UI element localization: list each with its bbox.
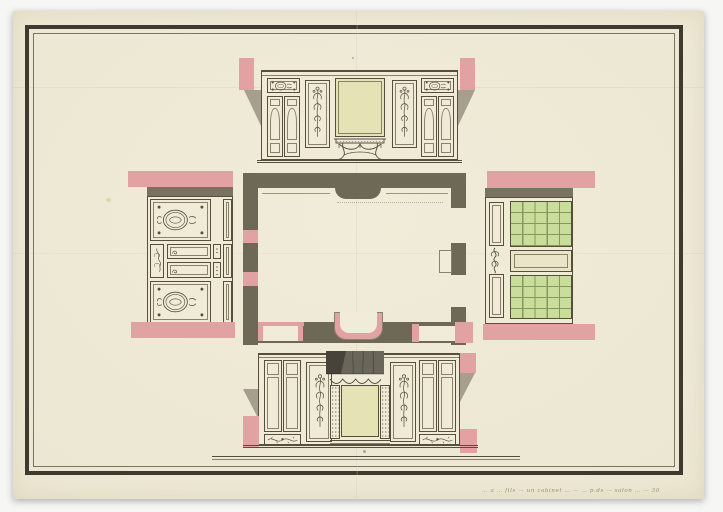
door-panel (424, 143, 434, 153)
plan-hearth-opening (340, 312, 377, 333)
door-panel-arched (424, 108, 434, 140)
door-leaf (421, 96, 437, 157)
cut-wall-pink-left (239, 58, 254, 90)
console-table (332, 137, 388, 161)
plan-window-pier (451, 188, 466, 208)
cupboard-door (264, 360, 282, 432)
medallion-ornament (423, 80, 452, 92)
door-panel (267, 363, 279, 375)
scalloped-valance (329, 378, 381, 385)
foxing-spot (363, 450, 366, 453)
plan-measure-line (337, 202, 443, 203)
west-wall-elevation (147, 196, 233, 324)
cupboard-door (283, 360, 301, 432)
plan-window-pier (451, 243, 466, 275)
door-panel (441, 377, 453, 429)
trellised-window (510, 201, 572, 247)
medallion-ornament (269, 80, 298, 92)
medallion-ornament (153, 202, 208, 238)
plan-door-jamb-pink (258, 326, 263, 341)
overdoor-long-panel (510, 250, 572, 272)
door-panel (422, 377, 434, 429)
vine-garland-ornament (266, 436, 299, 444)
narrow-stile-panel (489, 202, 504, 246)
door-panel (286, 363, 298, 375)
plan-door-jamb-pink (412, 324, 419, 342)
flower-garland-ornament (394, 83, 415, 145)
narrow-stile-panel (223, 199, 232, 241)
north-wall-elevation (261, 70, 458, 160)
flower-spray-ornament (393, 367, 415, 439)
door-panel (424, 99, 434, 106)
plan-door-jamb-pink (243, 230, 258, 243)
door-panel (287, 99, 297, 106)
cut-wall-pink-bottom (131, 322, 235, 338)
ornament-stile (150, 244, 164, 278)
cut-wall-pink-left (243, 416, 259, 447)
garland-dado-panel (264, 434, 301, 445)
door-panel (441, 363, 453, 375)
plan-console-bow (335, 188, 381, 199)
east-wall-elevation (485, 197, 573, 324)
door-panel (441, 143, 451, 153)
plan-wainscot-line (386, 193, 448, 194)
vine-garland-ornament (421, 436, 454, 444)
door-panel (270, 143, 280, 153)
fluted-end-panel (213, 262, 221, 278)
cut-wall-pink-right (460, 353, 476, 373)
fluted-end-panel (213, 244, 221, 259)
door-panel (287, 143, 297, 153)
plan-north-wall (243, 173, 466, 188)
south-wall-elevation (258, 353, 460, 445)
cut-wall-pink-right (460, 58, 475, 90)
plan-door-jamb-pink (243, 272, 258, 286)
door-panel (286, 377, 298, 429)
frieze-medallion-panel (421, 78, 454, 93)
sprig-ornament (152, 246, 162, 276)
plan-west-wall (243, 173, 258, 345)
plan-door-opening (419, 326, 455, 341)
cornice-band (147, 187, 233, 196)
cupboard-door (419, 360, 437, 432)
medallion-wainscot-panel (150, 281, 211, 323)
plan-corner-pink (455, 322, 473, 343)
floral-wainscot-panel (305, 80, 330, 148)
cut-wall-pink-top (128, 171, 233, 187)
cupboard-door (438, 360, 456, 432)
carved-trophy-ornament (485, 246, 505, 274)
scroll-ornament (171, 267, 179, 275)
floor-line (243, 445, 478, 448)
door-panel-arched (270, 108, 280, 140)
drapery-pelmet (325, 351, 385, 378)
door-leaf (438, 96, 454, 157)
medallion-ornament (153, 284, 208, 320)
narrow-stile-panel (223, 281, 232, 323)
plan-wainscot-line (262, 193, 330, 194)
dado-long-panel (167, 244, 211, 259)
door-panel (441, 99, 451, 106)
cut-wall-pink-bottom (483, 324, 595, 340)
foxing-spot (352, 57, 354, 59)
garland-dado-panel (419, 434, 456, 445)
mirror-jamb-beaded (380, 385, 390, 439)
narrow-stile-panel (223, 244, 232, 278)
narrow-stile-panel (489, 274, 504, 318)
floral-wainscot-panel (390, 362, 416, 442)
cut-wall-pink-top (487, 171, 595, 188)
door-panel (270, 99, 280, 106)
dado-long-panel (167, 262, 211, 278)
foxing-spot (106, 198, 111, 202)
flower-garland-ornament (307, 83, 328, 145)
trellised-window (510, 275, 572, 319)
medallion-wainscot-panel (150, 199, 211, 241)
door-panel-arched (287, 108, 297, 140)
base-scale-rule (212, 456, 520, 460)
scroll-ornament (171, 248, 179, 256)
cornice-band (485, 188, 573, 197)
door-panel (267, 377, 279, 429)
floor-line (257, 160, 462, 163)
floral-wainscot-panel (392, 80, 417, 148)
artwork-scan: … a … fils — un cabinet … — … p.ds — sal… (0, 0, 723, 512)
mirror-jamb-beaded (330, 385, 340, 439)
door-leaf (284, 96, 300, 157)
chimney-sill (330, 440, 390, 444)
door-panel (422, 363, 434, 375)
overmantel-mirror (341, 385, 379, 437)
fold-crease-horizontal (13, 253, 704, 254)
plan-door-jamb-pink (298, 326, 303, 341)
frieze-medallion-panel (267, 78, 300, 93)
door-panel-arched (441, 108, 451, 140)
pier-mirror (335, 78, 385, 137)
plan-pier-console (439, 250, 452, 273)
cut-wall-pink-right (460, 429, 477, 453)
handwritten-inscription: … a … fils — un cabinet … — … p.ds — sal… (482, 488, 660, 494)
door-leaf (267, 96, 283, 157)
plan-door-recess (263, 326, 298, 341)
